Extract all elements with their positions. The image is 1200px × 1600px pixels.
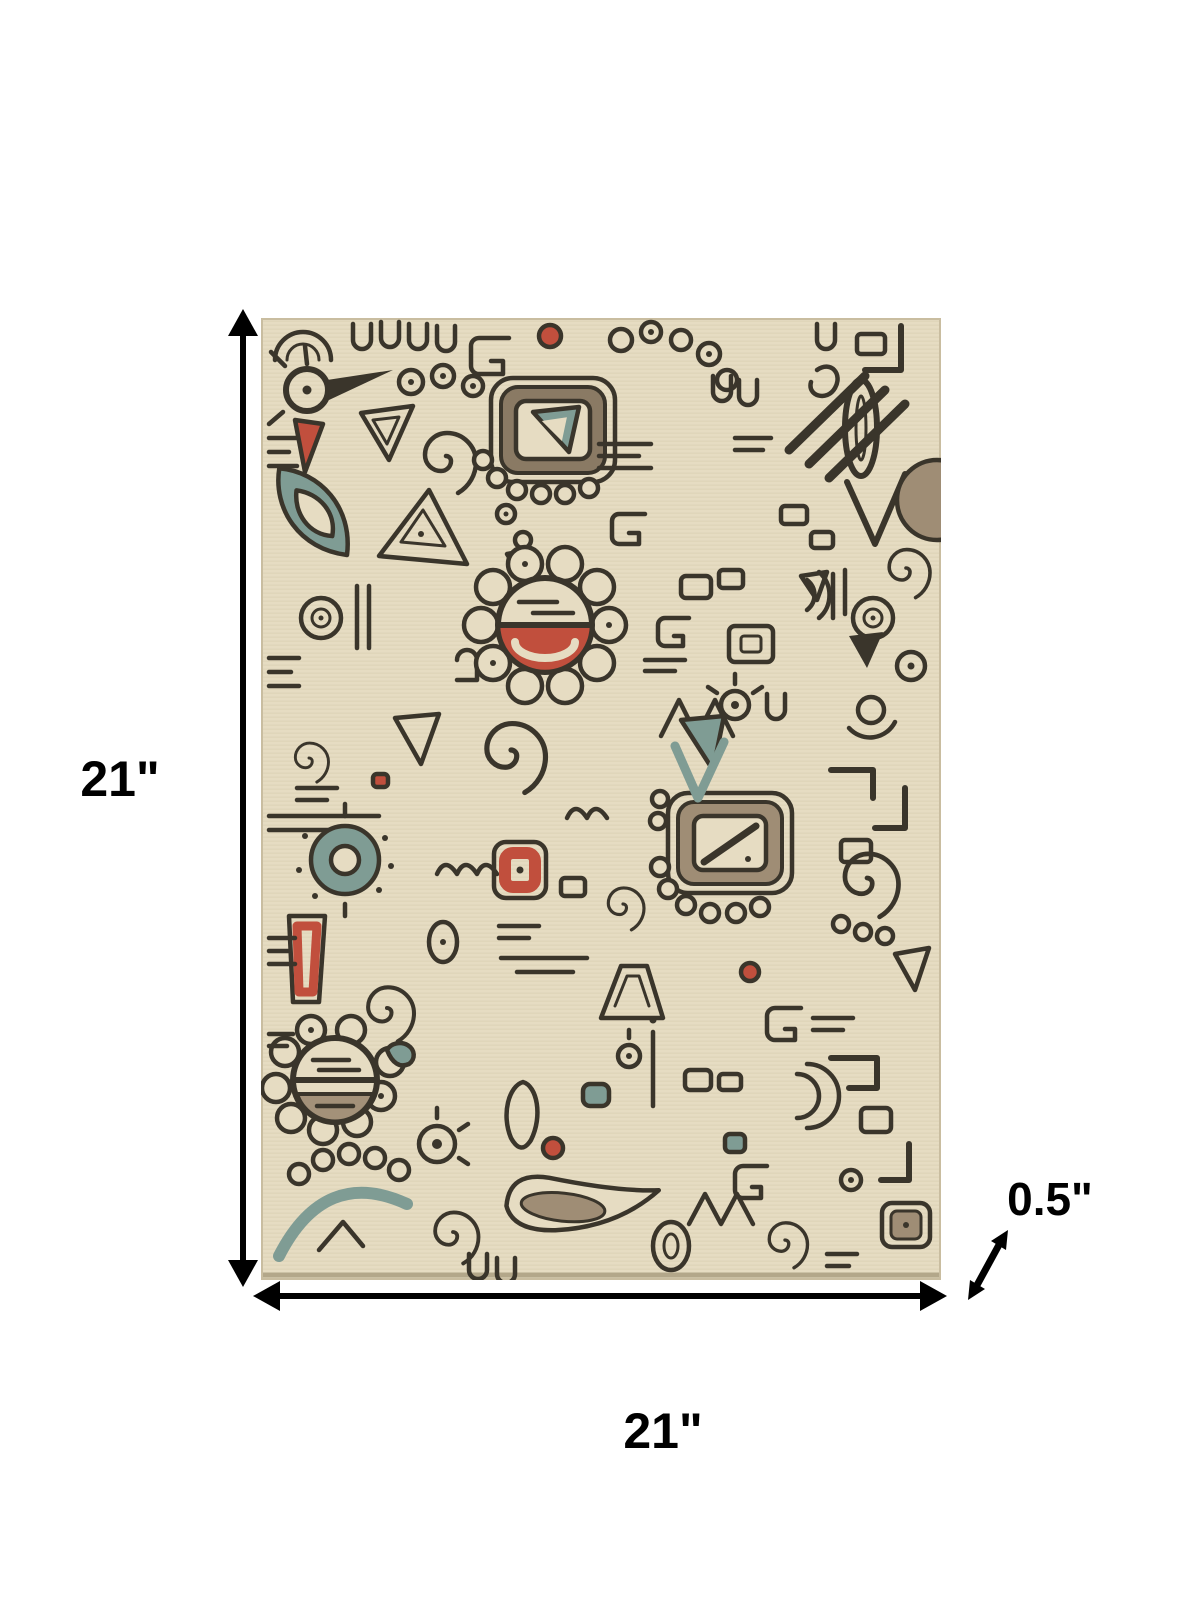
diagram-canvas: 21" 21" 0.5" [0, 0, 1200, 1600]
height-dimension-arrow [225, 306, 261, 1290]
thickness-label: 0.5" [980, 1172, 1120, 1226]
width-dimension-arrow [250, 1278, 950, 1314]
height-label: 21" [58, 750, 182, 808]
width-label: 21" [598, 1402, 728, 1460]
thickness-dimension-arrow [950, 1218, 1026, 1310]
rug-image [261, 318, 941, 1280]
rug-pattern-svg [261, 318, 941, 1280]
